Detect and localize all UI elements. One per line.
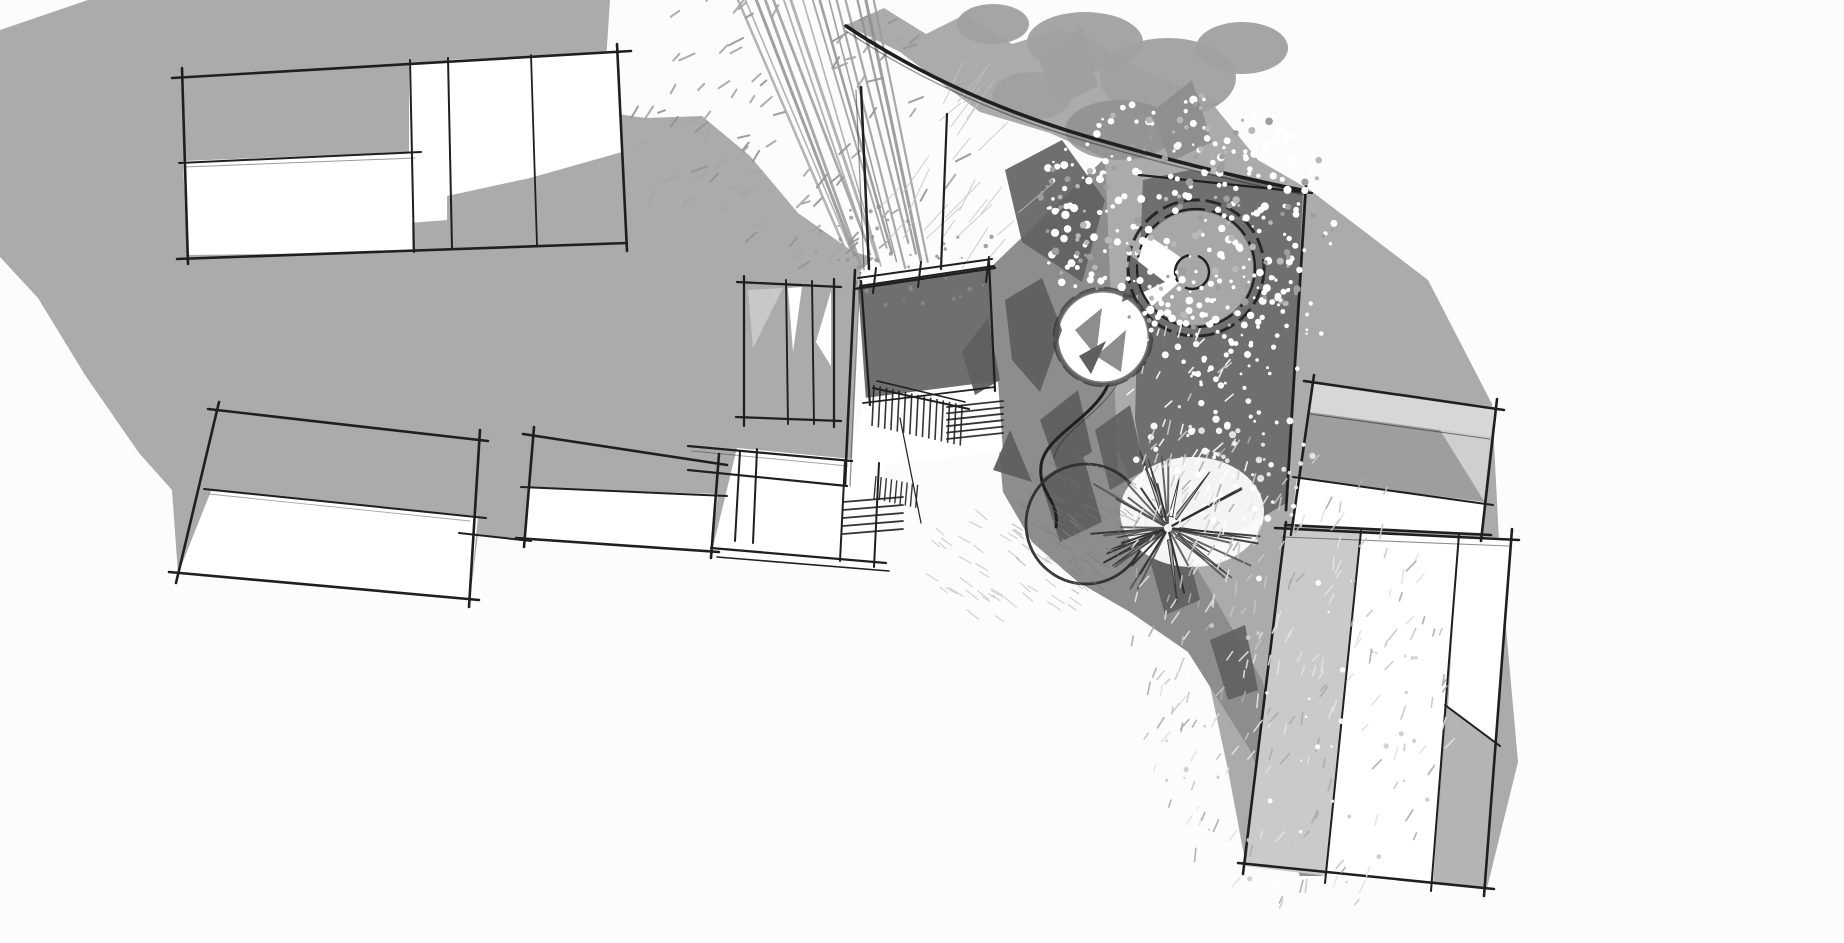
site-plan-canvas	[0, 0, 1844, 943]
site-plan-sketch	[0, 0, 1844, 943]
building-tall-strips	[1246, 530, 1510, 888]
